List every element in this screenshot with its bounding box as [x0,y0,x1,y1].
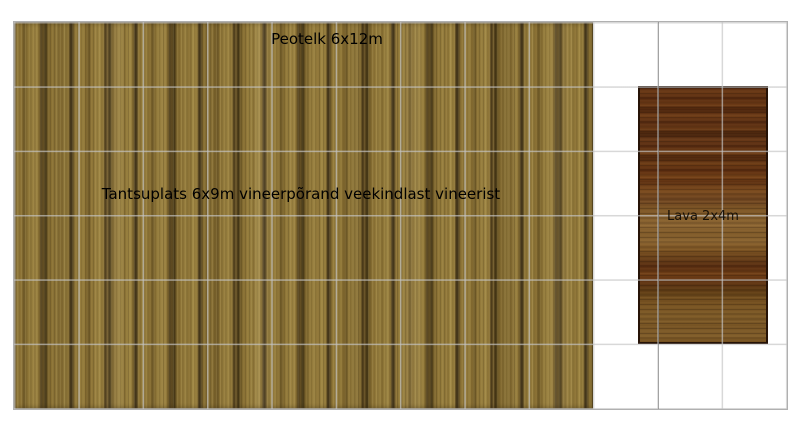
stage-label: Lava 2x4m [667,208,739,225]
tent-outline[interactable]: Peotelk 6x12m Tantsuplats 6x9m vineerpõr… [13,21,788,410]
dance-floor[interactable] [14,22,593,409]
floor-plan-canvas: Peotelk 6x12m Tantsuplats 6x9m vineerpõr… [0,0,800,424]
tent-label: Peotelk 6x12m [271,29,383,49]
dance-floor-label: Tantsuplats 6x9m vineerpõrand veekindlas… [102,184,500,204]
